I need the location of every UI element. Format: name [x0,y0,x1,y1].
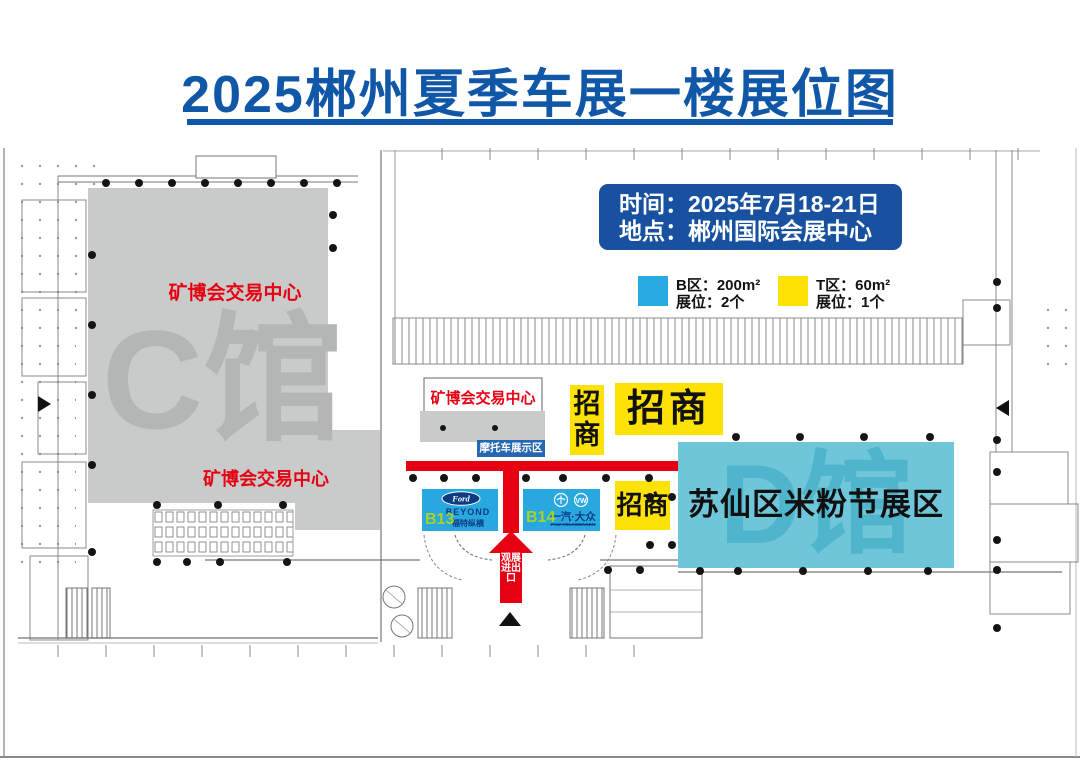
ford-logo-icon: Ford [441,491,481,506]
hall-c-watermark: C馆 [102,310,382,450]
event-info-box: 时间：2025年7月18-21日 地点：郴州国际会展中心 [599,184,902,250]
booth-b14-id: B14 [526,509,555,527]
legend-b-swatch [638,276,668,306]
escalator-block [420,411,545,442]
vw-logo-icon: VW [573,492,589,508]
booth-b14-brand-en: FAW-VOLKSWAGEN [550,522,596,527]
legend-t-text: T区：60m² 展位：1个 [816,277,890,311]
entrance-arrow-icon [489,531,533,553]
entrance-arrow-label: 观展进出口 [500,553,522,603]
direction-arrow-bottom-icon [499,612,521,626]
legend-t-booths: 展位：1个 [816,294,890,311]
direction-arrow-left-icon [38,396,51,412]
svg-text:Ford: Ford [451,494,470,504]
booth-b13: Ford BEYOND 福特纵横 B13 [422,489,498,531]
title-underline [187,119,893,125]
hall-c-label-top: 矿博会交易中心 [150,278,320,305]
booth-b14: VW 一汽·大众 FAW-VOLKSWAGEN B14 [523,489,600,531]
legend-t-zone: T区：60m² [816,277,890,294]
legend-b-booths: 展位：2个 [676,294,760,311]
moto-hall-label: 矿博会交易中心 [418,387,548,408]
legend-b-zone: B区：200m² [676,277,760,294]
legend-b-text: B区：200m² 展位：2个 [676,277,760,311]
zhaoshang-zone-small: 招商 [615,481,670,530]
legend-t-swatch [778,276,808,306]
direction-arrow-right-icon [996,400,1009,416]
faw-logo-icon [553,492,569,508]
corridor-horizontal [406,461,678,471]
event-location: 地点：郴州国际会展中心 [619,218,902,245]
zhaoshang-zone-vertical: 招商 [570,385,604,455]
moto-display-zone-label: 摩托车展示区 [477,440,545,457]
zhaoshang-zone-large: 招商 [615,383,723,435]
hall-d-label: 苏仙区米粉节展区 [678,442,954,568]
svg-text:VW: VW [575,498,587,505]
hall-d-area: D馆 苏仙区米粉节展区 [678,442,954,568]
page-title: 2025郴州夏季车展一楼展位图 [0,52,1080,127]
event-time: 时间：2025年7月18-21日 [619,191,902,218]
poster-page: C馆 矿博会交易中心 矿博会交易中心 矿博会交易中心 摩托车展示区 观展进出口 … [0,0,1080,764]
booth-b13-id: B13 [425,511,454,529]
corridor-vertical [503,461,519,533]
hall-c-label-bottom: 矿博会交易中心 [181,465,351,491]
